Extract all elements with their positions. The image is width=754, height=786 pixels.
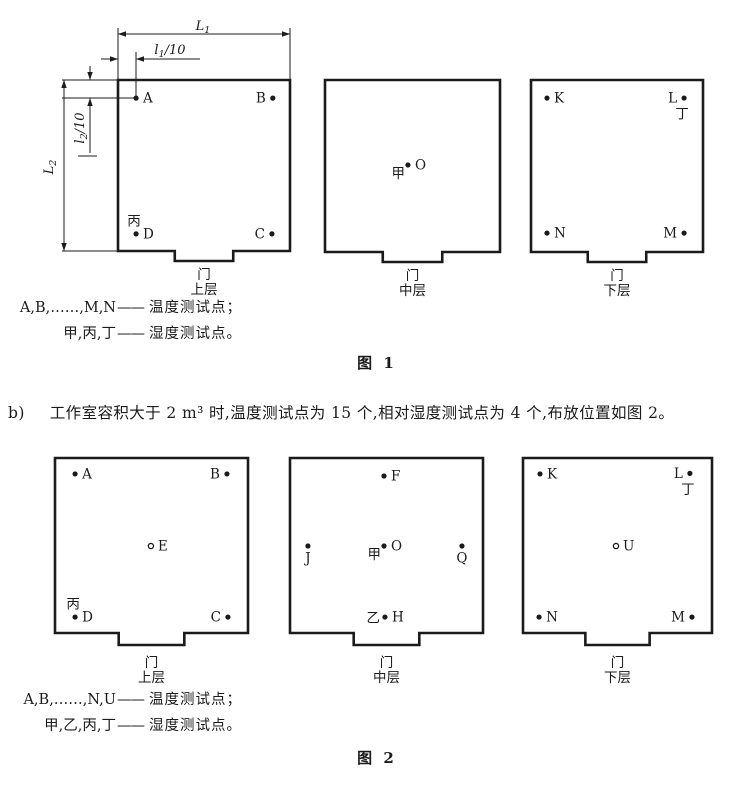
- legend-row: A,B,……,M,N——温度测试点；: [0, 297, 242, 320]
- test-point-label: B: [210, 466, 220, 482]
- door-label: 门: [197, 267, 211, 283]
- test-point-label: N: [546, 610, 558, 626]
- legend-dash: ——: [117, 715, 144, 738]
- figure2-caption: 图 2: [0, 747, 754, 768]
- legend-dash: ——: [117, 297, 144, 320]
- dimension-label: l2​/10: [73, 112, 90, 143]
- dimension-arrowhead: [282, 31, 290, 36]
- humidity-point-label: 丙: [66, 597, 80, 613]
- test-point-marker: [225, 614, 230, 619]
- test-point-marker: [405, 162, 410, 167]
- test-point-label: O: [415, 157, 426, 173]
- figure1-caption: 图 1: [0, 352, 754, 373]
- humidity-point-label: 甲: [391, 166, 405, 182]
- dimension-arrowhead: [118, 31, 126, 36]
- legend-desc: 湿度测试点。: [149, 715, 242, 738]
- dimension-arrowhead: [87, 72, 92, 80]
- layer-label: 上层: [191, 282, 218, 298]
- layer-label: 中层: [373, 670, 400, 686]
- test-point-label: M: [663, 226, 677, 242]
- humidity-point-label: 乙: [366, 611, 380, 627]
- test-point-marker: [687, 471, 692, 476]
- test-point-marker: [681, 230, 686, 235]
- layer-label: 中层: [399, 283, 426, 299]
- legend-row: 甲,乙,丙,丁——湿度测试点。: [0, 715, 242, 738]
- dimension-arrowhead: [110, 56, 118, 61]
- layer-label: 下层: [604, 670, 631, 686]
- figure2-diagram: 门上层ABED丙C门中层FJO甲QH乙门下层KL丁UNM: [0, 430, 754, 700]
- test-point-label: D: [143, 226, 154, 242]
- standard-document-page: 门上层ABCD丙门中层O甲门下层KL丁NML1​l1​/10l2​/10L2​ …: [0, 0, 754, 786]
- paragraph-b-text: 工作室容积大于 2 m³ 时,温度测试点为 15 个,相对湿度测试点为 4 个,…: [50, 404, 675, 422]
- dimension-label: L2​: [42, 160, 59, 176]
- test-point-marker: [537, 471, 542, 476]
- legend-term: 甲,乙,丙,丁: [0, 715, 116, 738]
- test-point-marker: [72, 614, 77, 619]
- legend-dash: ——: [117, 689, 144, 712]
- test-point-label: C: [211, 610, 221, 626]
- test-point-marker: [269, 231, 274, 236]
- room-outline: [325, 80, 500, 262]
- door-label: 门: [380, 655, 394, 671]
- test-point-marker: [381, 543, 386, 548]
- legend-term: A,B,……,M,N: [0, 297, 116, 320]
- humidity-point-label: 丁: [681, 482, 695, 498]
- test-point-label: K: [554, 91, 565, 107]
- legend-term: 甲,丙,丁: [0, 323, 116, 346]
- door-label: 门: [406, 268, 420, 284]
- dimension-label: L1​: [195, 19, 211, 36]
- dimension-label: l1​/10: [154, 43, 185, 60]
- dimension-arrowhead: [61, 80, 66, 88]
- test-point-marker: [689, 614, 694, 619]
- test-point-label: A: [81, 466, 92, 482]
- test-point-label: D: [82, 610, 93, 626]
- figure1-diagram: 门上层ABCD丙门中层O甲门下层KL丁NML1​l1​/10l2​/10L2​: [0, 0, 754, 300]
- test-point-label: F: [391, 469, 400, 485]
- test-point-label: L: [668, 91, 677, 107]
- legend-row: A,B,……,N,U——温度测试点；: [0, 689, 242, 712]
- test-point-label: U: [623, 539, 634, 555]
- layer-label: 上层: [138, 670, 165, 686]
- humidity-point-label: 甲: [367, 547, 381, 563]
- list-item-marker: b): [8, 404, 25, 422]
- test-point-marker: [544, 230, 549, 235]
- paragraph-b: b)工作室容积大于 2 m³ 时,温度测试点为 15 个,相对湿度测试点为 4 …: [8, 401, 674, 423]
- figure2-legend: A,B,……,N,U——温度测试点； 甲,乙,丙,丁——湿度测试点。: [0, 689, 242, 741]
- test-point-marker: [305, 543, 310, 548]
- legend-desc: 温度测试点；: [149, 297, 242, 320]
- test-point-label: Q: [456, 551, 467, 567]
- legend-term: A,B,……,N,U: [0, 689, 116, 712]
- test-point-label: C: [255, 226, 265, 242]
- humidity-point-label: 丙: [127, 213, 141, 229]
- test-point-marker: [224, 471, 229, 476]
- test-point-label: K: [547, 466, 558, 482]
- test-point-marker: [133, 231, 138, 236]
- test-point-marker-open: [613, 543, 618, 548]
- test-point-label: N: [554, 226, 566, 242]
- figure1-legend: A,B,……,M,N——温度测试点； 甲,丙,丁——湿度测试点。: [0, 297, 242, 349]
- door-label: 门: [611, 655, 625, 671]
- test-point-marker: [382, 614, 387, 619]
- test-point-label: H: [392, 610, 404, 626]
- test-point-marker: [72, 471, 77, 476]
- test-point-marker-open: [148, 543, 153, 548]
- dimension-arrowhead: [136, 56, 144, 61]
- humidity-point-label: 丁: [675, 107, 689, 123]
- layer-label: 下层: [604, 283, 631, 299]
- dimension-arrowhead: [61, 243, 66, 251]
- legend-dash: ——: [117, 323, 144, 346]
- test-point-marker: [681, 95, 686, 100]
- test-point-label: B: [256, 91, 266, 107]
- legend-desc: 湿度测试点。: [149, 323, 242, 346]
- test-point-label: J: [303, 551, 310, 567]
- door-label: 门: [145, 655, 159, 671]
- test-point-marker: [381, 473, 386, 478]
- test-point-marker: [459, 543, 464, 548]
- test-point-label: L: [674, 466, 683, 482]
- test-point-label: M: [671, 610, 685, 626]
- test-point-label: A: [142, 91, 153, 107]
- test-point-label: O: [391, 539, 402, 555]
- test-point-marker: [536, 614, 541, 619]
- legend-desc: 温度测试点；: [149, 689, 242, 712]
- legend-row: 甲,丙,丁——湿度测试点。: [0, 323, 242, 346]
- test-point-marker: [270, 96, 275, 101]
- dimension-arrowhead: [87, 98, 92, 106]
- test-point-label: E: [158, 539, 168, 555]
- test-point-marker: [544, 95, 549, 100]
- door-label: 门: [610, 268, 624, 284]
